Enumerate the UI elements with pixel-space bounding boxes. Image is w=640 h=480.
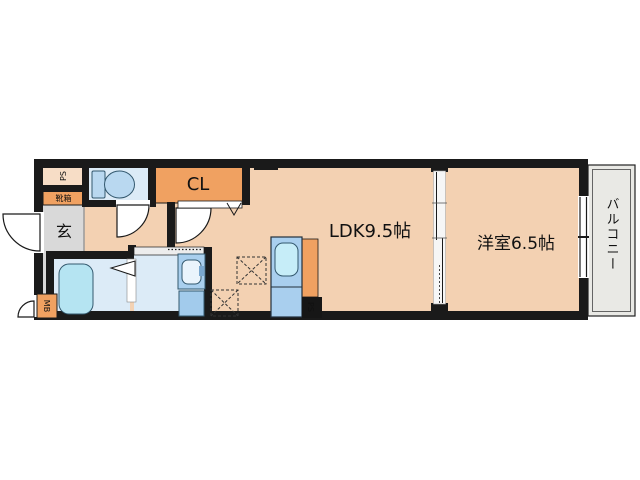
closet-label: CL bbox=[187, 174, 210, 195]
balcony-label: バルコニー bbox=[604, 197, 620, 272]
balcony-window bbox=[578, 196, 589, 278]
floorplan-canvas: バルコニー bbox=[0, 0, 640, 480]
balcony: バルコニー bbox=[588, 165, 635, 316]
floorplan-page: バルコニー bbox=[0, 0, 640, 480]
genkan-label: 玄 bbox=[56, 222, 72, 241]
shoe-cabinet-label: 靴箱 bbox=[56, 193, 72, 203]
washing-machine-space bbox=[179, 291, 204, 316]
kitchen-sink-icon bbox=[275, 243, 298, 276]
kitchen-counter bbox=[302, 239, 318, 297]
ldk-label: LDK9.5帖 bbox=[329, 221, 411, 242]
pipe-space-kitchen-label: PS bbox=[306, 302, 315, 312]
partition-bottom-stub bbox=[431, 303, 448, 320]
bathtub-icon bbox=[59, 264, 93, 314]
meter-box-label: MB bbox=[42, 300, 51, 312]
western-room-label: 洋室6.5帖 bbox=[477, 234, 555, 254]
toilet-icon bbox=[92, 171, 135, 198]
washbasin-icon bbox=[178, 254, 205, 289]
partition-top-stub bbox=[431, 159, 448, 172]
room-partition-sliding-door bbox=[432, 171, 447, 304]
pipe-space-upper-label: PS bbox=[59, 171, 68, 181]
faucet-icon bbox=[199, 266, 204, 276]
meter-box: MB bbox=[37, 294, 57, 318]
